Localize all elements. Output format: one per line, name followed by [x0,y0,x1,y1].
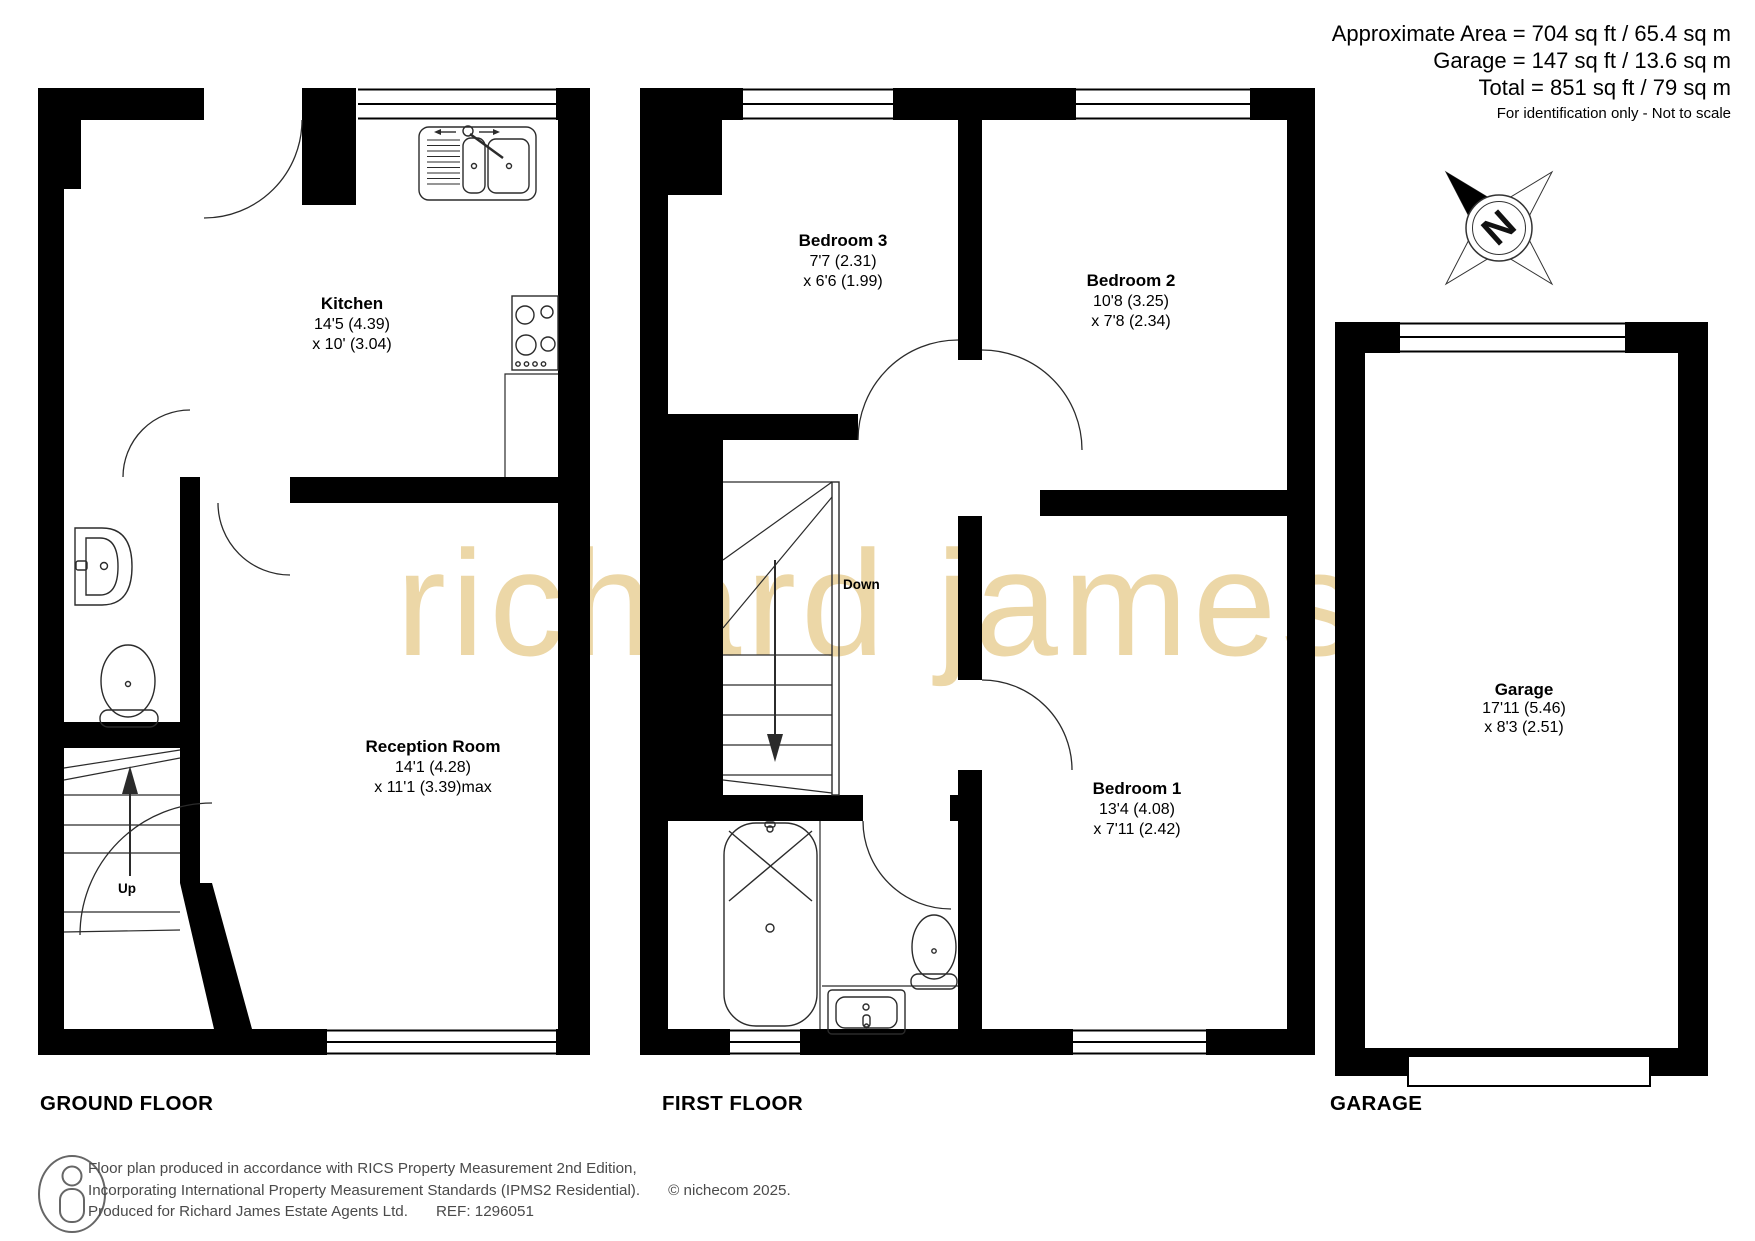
bedroom3-door-arc [858,340,958,440]
garage-door-icon [1365,1056,1650,1086]
first-floor-walls [640,88,1315,1055]
compass-icon: N [1446,172,1552,284]
stairs-up-label: Up [97,881,157,896]
room-label-bedroom3: Bedroom 3 7'7 (2.31) x 6'6 (1.99) [743,231,943,293]
floor-title-ground: GROUND FLOOR [40,1092,213,1116]
window [730,1029,800,1055]
stairs-up-icon [64,750,180,932]
room-label-bedroom2: Bedroom 2 10'8 (3.25) x 7'8 (2.34) [1031,271,1231,333]
floorplan-drawing: N [0,0,1755,1241]
room-label-garage: Garage 17'11 (5.46) x 8'3 (2.51) [1424,680,1624,737]
reference-number: REF: 1296051 [436,1203,534,1220]
window [1400,322,1625,353]
scale-disclaimer: For identification only - Not to scale [1332,105,1731,122]
footer-disclaimer: Floor plan produced in accordance with R… [88,1158,791,1223]
bedroom1-door-arc [982,680,1072,770]
kitchen-counter-line [505,374,558,477]
bathroom-door-arc [863,821,951,909]
window [358,88,556,120]
floor-title-first: FIRST FLOOR [662,1092,803,1116]
stairs-down-label: Down [843,577,880,592]
area-line: Total = 851 sq ft / 79 sq m [1332,74,1731,101]
kitchen-door-arc [218,503,290,575]
footer-line-2: Incorporating International Property Mea… [88,1180,791,1202]
room-label-bedroom1: Bedroom 1 13'4 (4.08) x 7'11 (2.42) [1037,779,1237,841]
ground-floor-walls [38,88,590,1055]
window [743,88,893,120]
floorplan-page: richard james [0,0,1755,1241]
toilet-icon [911,915,957,989]
window [1073,1029,1206,1055]
front-door-arc [204,120,302,218]
copyright: © nichecom 2025. [668,1182,791,1199]
hob-icon [512,296,558,370]
window [1076,88,1250,120]
footer-line-3: Produced for Richard James Estate Agents… [88,1201,791,1223]
bath-icon [724,822,817,1026]
area-summary: Approximate Area = 704 sq ft / 65.4 sq m… [1332,20,1731,122]
kitchen-sink-icon [419,126,536,200]
footer-line-1: Floor plan produced in accordance with R… [88,1158,791,1180]
window [327,1029,556,1055]
basin-icon [828,990,905,1034]
floor-title-garage: GARAGE [1330,1092,1422,1116]
wc-door-arc [123,410,190,477]
ground-floor-plan [38,88,590,1055]
room-label-reception: Reception Room 14'1 (4.28) x 11'1 (3.39)… [333,737,533,799]
wc-basin-icon [75,528,132,605]
room-label-kitchen: Kitchen 14'5 (4.39) x 10' (3.04) [252,294,452,356]
first-floor-plan [640,88,1315,1055]
area-line: Garage = 147 sq ft / 13.6 sq m [1332,47,1731,74]
area-line: Approximate Area = 704 sq ft / 65.4 sq m [1332,20,1731,47]
stairs-down-icon [723,482,839,795]
bedroom2-door-arc [982,350,1082,450]
toilet-icon [100,645,158,727]
